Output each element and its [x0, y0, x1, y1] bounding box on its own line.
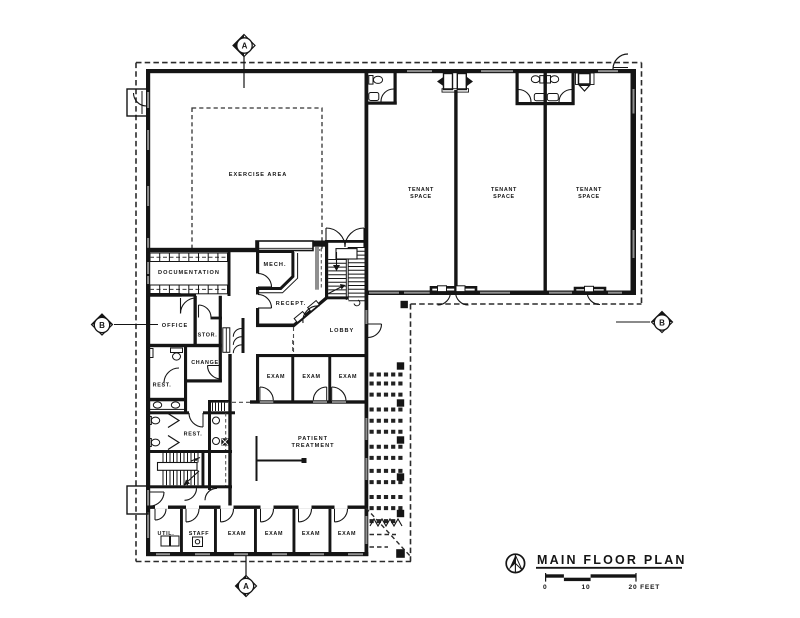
svg-text:A: A	[243, 582, 249, 591]
svg-text:B: B	[99, 321, 105, 330]
svg-text:LOBBY: LOBBY	[330, 328, 355, 334]
svg-text:EXERCISE AREA: EXERCISE AREA	[229, 172, 288, 178]
svg-text:EXAM: EXAM	[302, 531, 320, 537]
svg-text:OFFICE: OFFICE	[162, 323, 189, 329]
svg-text:B: B	[659, 319, 665, 328]
svg-text:EXAM: EXAM	[228, 531, 246, 537]
svg-text:EXAM: EXAM	[267, 374, 285, 380]
svg-text:EXAM: EXAM	[338, 531, 356, 537]
svg-text:STOR.: STOR.	[198, 333, 218, 339]
svg-text:REST.: REST.	[153, 383, 172, 389]
svg-text:SPACE: SPACE	[410, 194, 432, 200]
svg-text:TENANT: TENANT	[491, 187, 517, 193]
svg-text:SPACE: SPACE	[493, 194, 515, 200]
svg-text:MAIN FLOOR PLAN: MAIN FLOOR PLAN	[537, 553, 687, 567]
svg-text:TENANT: TENANT	[576, 187, 602, 193]
svg-text:0: 0	[543, 584, 547, 591]
svg-text:20 FEET: 20 FEET	[629, 584, 661, 591]
svg-text:CHANGE: CHANGE	[191, 360, 219, 366]
svg-text:TREATMENT: TREATMENT	[291, 443, 334, 449]
svg-text:EXAM: EXAM	[302, 374, 320, 380]
svg-text:SPACE: SPACE	[578, 194, 600, 200]
svg-text:A: A	[242, 42, 248, 51]
svg-text:RECEPT.: RECEPT.	[276, 301, 307, 307]
svg-text:EXAM: EXAM	[265, 531, 283, 537]
svg-text:MECH.: MECH.	[263, 262, 286, 268]
svg-text:DOCUMENTATION: DOCUMENTATION	[158, 270, 220, 276]
svg-text:TENANT: TENANT	[408, 187, 434, 193]
svg-text:EXAM: EXAM	[339, 374, 357, 380]
svg-text:STAFF: STAFF	[189, 531, 209, 537]
svg-text:REST.: REST.	[184, 432, 203, 438]
svg-text:PATIENT: PATIENT	[298, 436, 328, 442]
svg-text:10: 10	[582, 584, 591, 591]
